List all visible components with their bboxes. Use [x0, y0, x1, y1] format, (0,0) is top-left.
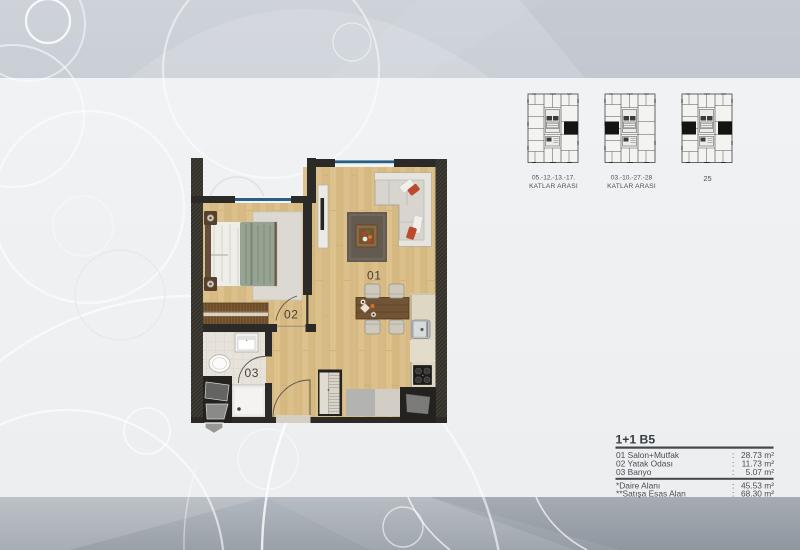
svg-text:KATLAR ARASI: KATLAR ARASI — [529, 183, 578, 190]
svg-text::: : — [732, 489, 734, 499]
svg-text:68.30 m²: 68.30 m² — [741, 489, 774, 499]
svg-text:01: 01 — [367, 269, 382, 283]
svg-text:5.07 m²: 5.07 m² — [746, 467, 775, 477]
svg-text::: : — [732, 467, 734, 477]
svg-text:**Satışa Esas Alan: **Satışa Esas Alan — [616, 489, 686, 499]
svg-text:02: 02 — [284, 308, 299, 322]
svg-text:KATLAR ARASI: KATLAR ARASI — [607, 183, 656, 190]
svg-text:03: 03 — [245, 366, 260, 380]
svg-text:05.-12.-13.-17.: 05.-12.-13.-17. — [532, 175, 575, 182]
svg-text:03 Banyo: 03 Banyo — [616, 467, 652, 477]
svg-text:03.-10.-27.-28: 03.-10.-27.-28 — [611, 175, 653, 182]
svg-text:25: 25 — [703, 174, 711, 183]
svg-text:1+1 B5: 1+1 B5 — [616, 433, 656, 447]
